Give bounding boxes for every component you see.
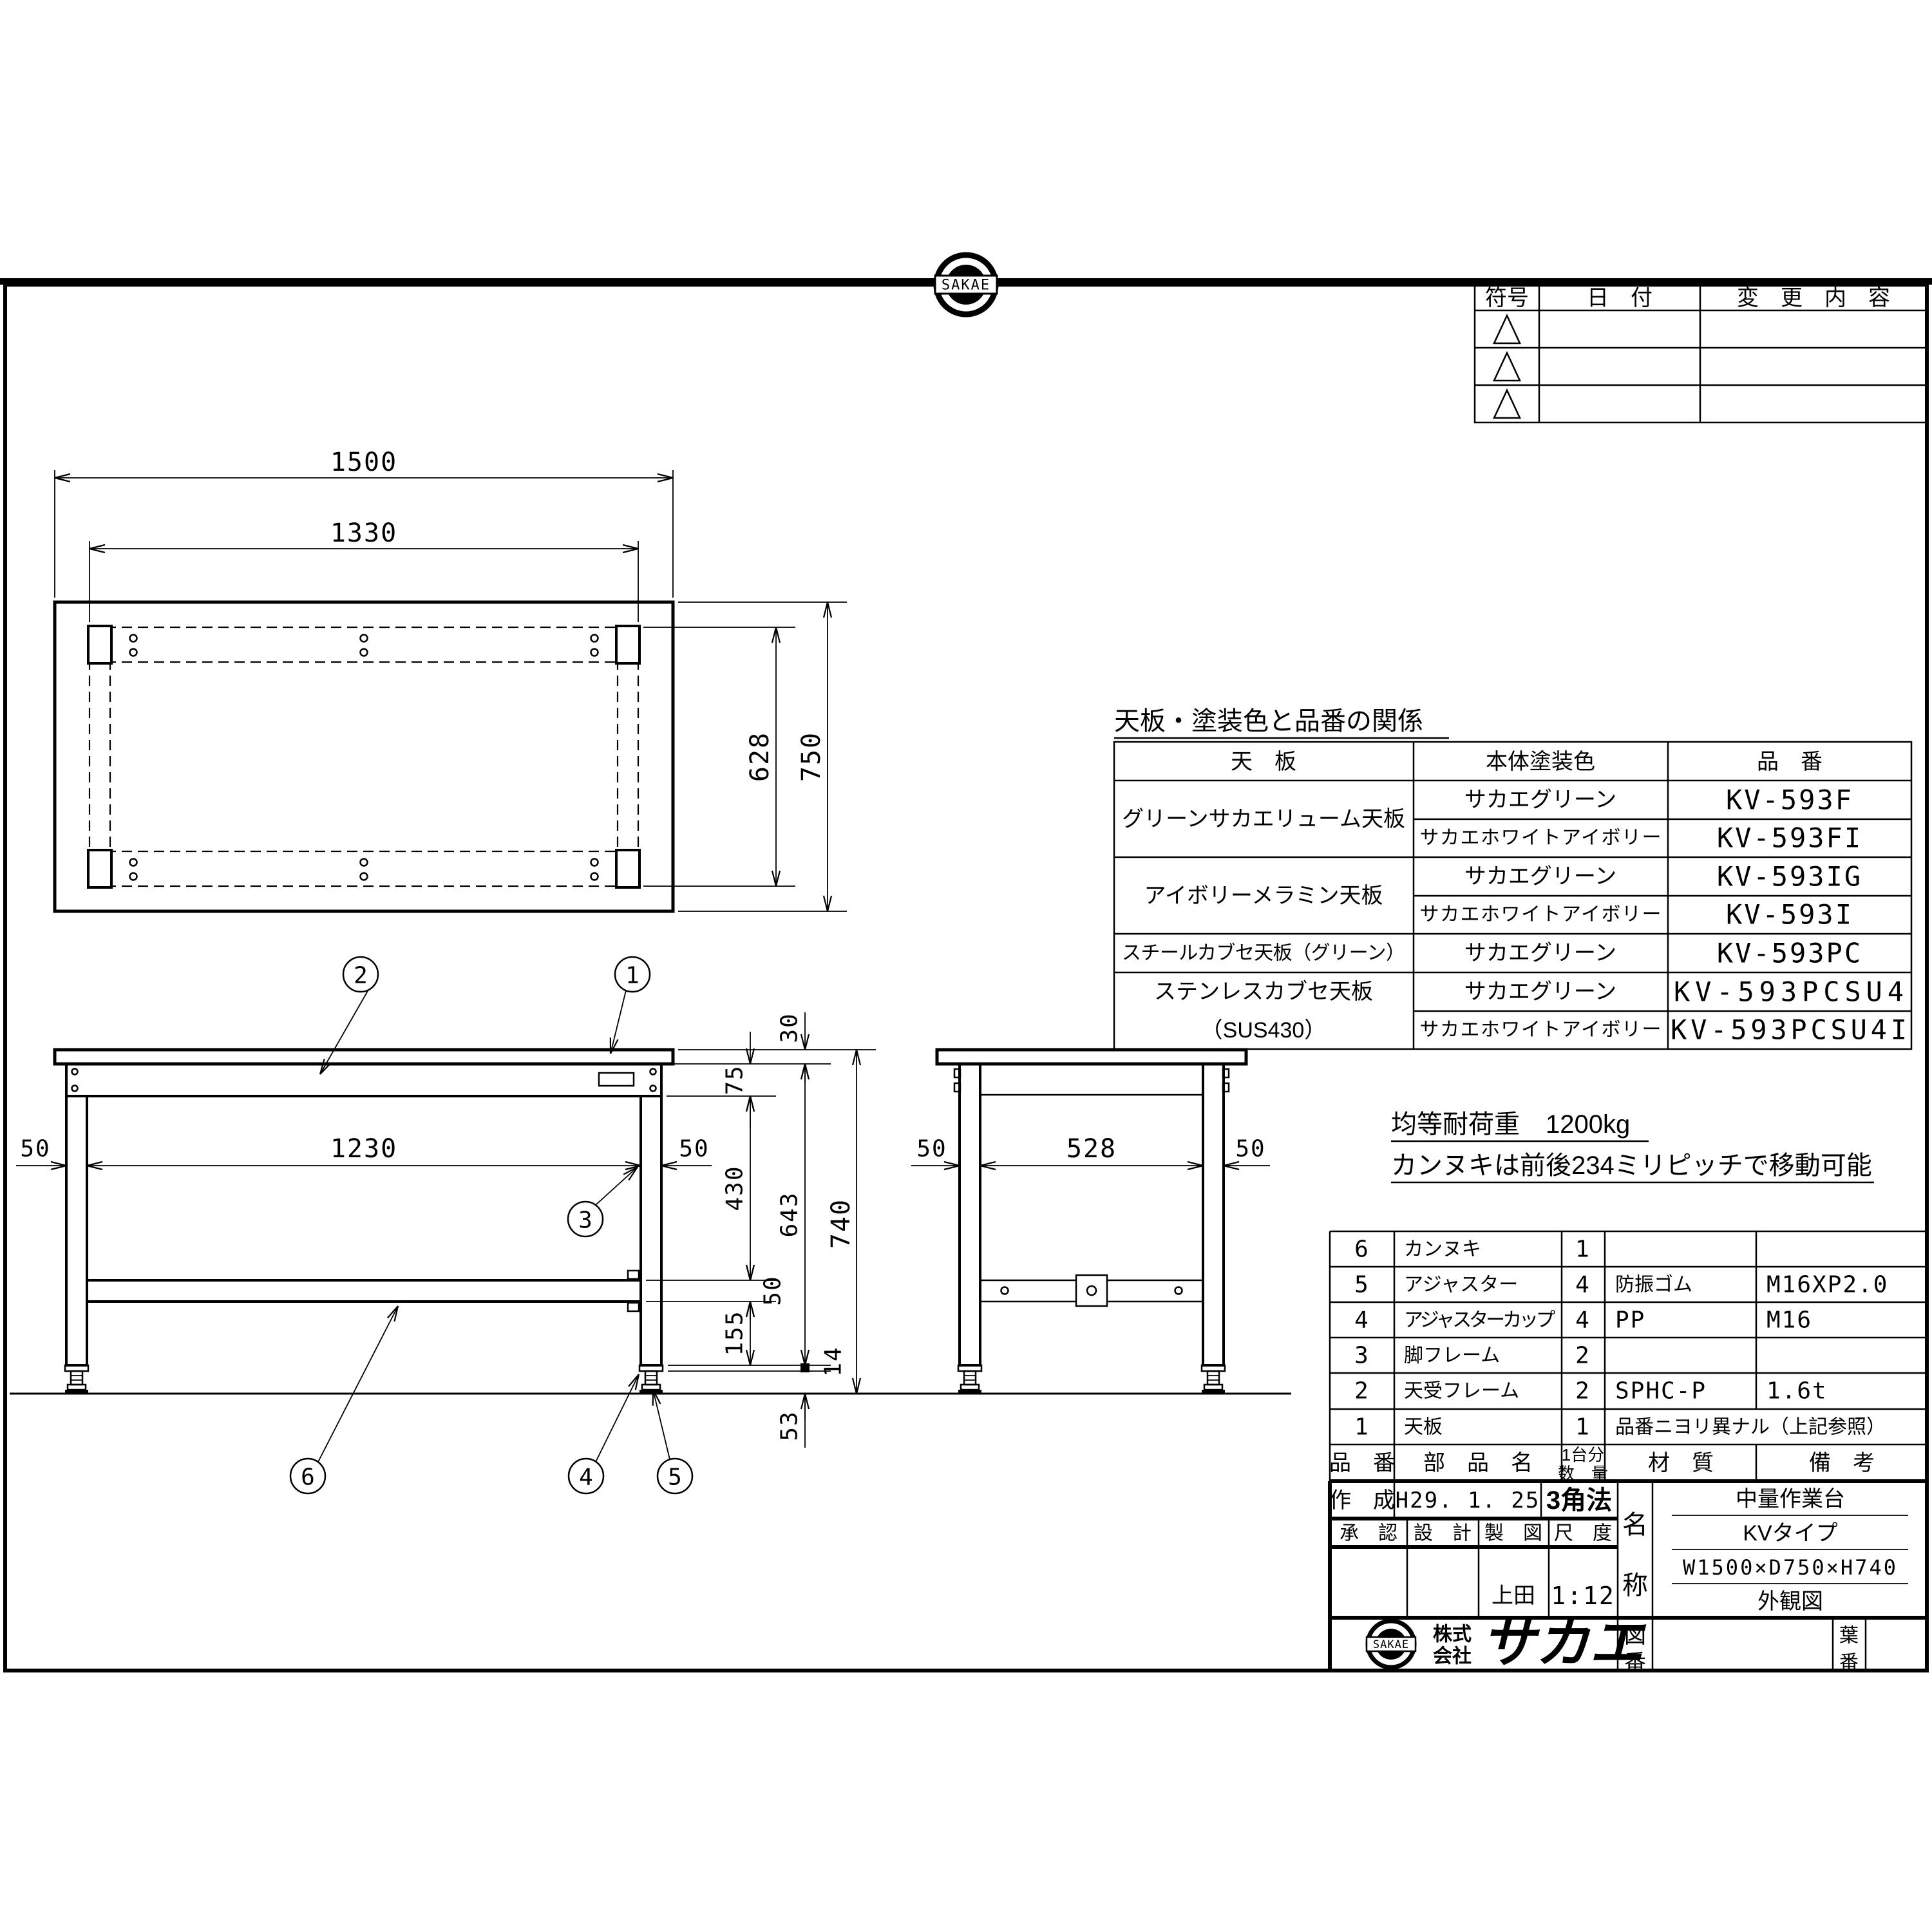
note-load: 均等耐荷重 1200kg	[1391, 1110, 1630, 1139]
col-top-plate: 天 板	[1231, 750, 1296, 774]
revision-table: 符号 日 付 変 更 内 容	[1475, 285, 1927, 422]
dim-front-leg-total: 643	[777, 1191, 803, 1237]
part-number: KV-593I	[1726, 899, 1853, 931]
part-row-qty: 2	[1575, 1343, 1591, 1369]
drawing-number-label: 図	[1624, 1624, 1646, 1648]
dim-front-adjuster: 53	[777, 1410, 803, 1441]
dim-front-height: 740	[826, 1198, 856, 1249]
parts-header-remark: 備 考	[1809, 1451, 1875, 1475]
dim-plan-inner-depth: 628	[745, 732, 775, 782]
parts-header-qty: 1台分	[1562, 1445, 1604, 1464]
part-row-no: 3	[1354, 1343, 1370, 1369]
balloon-5: 5	[668, 1464, 682, 1491]
part-row-no: 1	[1354, 1414, 1370, 1441]
part-number: KV-593F	[1726, 784, 1853, 816]
part-row-material: 品番ニヨリ異ナル（上記参照）	[1615, 1417, 1886, 1438]
sheet-frame	[0, 278, 1932, 1671]
balloon-3: 3	[578, 1207, 592, 1234]
front-leg-right	[641, 1096, 661, 1365]
name-label: 称	[1622, 1571, 1648, 1600]
dim-front-apron-to-rail: 430	[722, 1165, 748, 1211]
part-row-qty: 2	[1575, 1378, 1591, 1405]
parts-header-name: 部 品 名	[1423, 1451, 1533, 1475]
dim-front-rail: 50	[760, 1275, 786, 1305]
color-table-title: 天板・塗装色と品番の関係	[1114, 707, 1423, 735]
dim-front-plate: 14	[820, 1346, 847, 1376]
part-row-name: 天板	[1404, 1417, 1443, 1438]
part-number: KV-593FI	[1717, 822, 1862, 854]
part-number: KV-593PC	[1717, 938, 1862, 969]
sheet-number-label: 葉	[1839, 1625, 1859, 1647]
dim-plan-width: 1500	[330, 448, 397, 477]
created-label: 作 成	[1329, 1488, 1395, 1513]
sheet-number-label: 番	[1839, 1653, 1859, 1674]
balloon-2: 2	[354, 963, 368, 989]
part-number: KV-593PCSU4I	[1671, 1014, 1909, 1046]
front-tabletop	[55, 1050, 673, 1064]
revision-triangle-icon	[1494, 316, 1520, 343]
color-part-table: 天板・塗装色と品番の関係 天 板 本体塗装色 品 番 グリーンサカエリューム天板…	[1114, 707, 1911, 1049]
part-row-remark: M16XP2.0	[1766, 1272, 1888, 1298]
part-row-no: 5	[1354, 1272, 1370, 1298]
name-label: 名	[1622, 1511, 1648, 1539]
parts-header-material: 材 質	[1648, 1451, 1714, 1475]
draft-label: 製 図	[1484, 1523, 1542, 1544]
sakae-top-logo-icon: SAKAE	[935, 255, 997, 314]
col-part-no: 品 番	[1757, 750, 1823, 774]
coat-color: サカエグリーン	[1464, 980, 1616, 1004]
side-tabletop	[937, 1050, 1246, 1064]
top-logo-text: SAKAE	[942, 278, 990, 294]
rail-center-plate	[1076, 1275, 1107, 1306]
adjuster-right	[639, 1365, 663, 1394]
drawing-sheet: SAKAE 符号 日 付 変 更 内 容	[0, 0, 1932, 1932]
part-number: KV-593PCSU4	[1674, 976, 1906, 1008]
product-size: W1500×D750×H740	[1683, 1555, 1898, 1580]
approve-label: 承 認	[1340, 1523, 1397, 1544]
part-row-no: 4	[1354, 1307, 1370, 1334]
revision-triangle-icon	[1494, 353, 1520, 381]
part-row-name: 天受フレーム	[1404, 1381, 1519, 1402]
part-row-name: カンヌキ	[1404, 1239, 1481, 1260]
dim-plan-inner-width: 1330	[330, 518, 397, 548]
parts-header-no: 品 番	[1329, 1451, 1395, 1475]
part-row-name: アジャスター	[1404, 1274, 1518, 1296]
drafter-name: 上田	[1492, 1584, 1535, 1608]
front-apron	[66, 1064, 661, 1096]
coat-color: サカエグリーン	[1464, 941, 1616, 965]
projection-method: 3角法	[1546, 1486, 1612, 1515]
frame-holes	[130, 635, 598, 880]
company-logotype: サカエ	[1481, 1613, 1647, 1673]
balloon-6: 6	[301, 1464, 315, 1491]
side-leg-right	[1203, 1064, 1224, 1365]
plate-name: ステンレスカブセ天板	[1154, 980, 1373, 1004]
plan-view: 1500 1330 628 750	[55, 448, 847, 911]
adjuster-left	[65, 1365, 88, 1394]
dim-front-span: 1230	[330, 1134, 397, 1164]
bottom-logo-text: SAKAE	[1373, 1638, 1409, 1651]
part-row-no: 2	[1354, 1378, 1370, 1405]
part-number: KV-593IG	[1717, 861, 1862, 893]
drawing-kind: 外観図	[1757, 1589, 1823, 1614]
dim-plan-depth: 750	[797, 732, 826, 782]
plate-name: グリーンサカエリューム天板	[1122, 807, 1405, 831]
company-prefix: 株式	[1433, 1624, 1472, 1645]
front-leg-left	[66, 1096, 87, 1365]
coat-color: サカエホワイトアイボリー	[1420, 828, 1662, 849]
parts-header-qty: 数 量	[1558, 1464, 1608, 1483]
product-name: 中量作業台	[1736, 1487, 1845, 1511]
part-row-material: SPHC-P	[1615, 1378, 1707, 1405]
sakae-bottom-logo-icon: SAKAE	[1367, 1621, 1416, 1667]
part-row-material: PP	[1615, 1307, 1645, 1334]
balloon-1: 1	[625, 963, 639, 989]
dim-side-span: 528	[1066, 1134, 1117, 1164]
note-rail-pitch: カンヌキは前後234ミリピッチで移動可能	[1391, 1151, 1872, 1180]
part-row-no: 6	[1354, 1236, 1370, 1263]
design-label: 設 計	[1414, 1523, 1472, 1544]
company-prefix: 会社	[1433, 1646, 1472, 1667]
adjuster-side-left	[958, 1365, 981, 1394]
balloon-4: 4	[579, 1464, 593, 1491]
adjuster-side-right	[1202, 1365, 1225, 1394]
scale-label: 尺 度	[1554, 1523, 1612, 1544]
created-date: H29. 1. 25	[1396, 1488, 1540, 1513]
coat-color: サカエホワイトアイボリー	[1420, 904, 1662, 925]
side-apron	[980, 1064, 1203, 1095]
part-row-name: アジャスターカップ	[1404, 1310, 1555, 1331]
part-row-qty: 1	[1575, 1236, 1591, 1263]
notes: 均等耐荷重 1200kg カンヌキは前後234ミリピッチで移動可能	[1391, 1110, 1874, 1182]
side-view: 50 528 50	[911, 1050, 1270, 1394]
drawing-number-label: 番	[1624, 1651, 1646, 1675]
coat-color: サカエグリーン	[1464, 788, 1616, 812]
plate-name: アイボリーメラミン天板	[1144, 884, 1383, 908]
dim-front-leg-right: 50	[679, 1136, 709, 1162]
front-rail	[87, 1280, 641, 1302]
apron-slot	[599, 1073, 634, 1086]
dim-front-leg-left: 50	[20, 1136, 50, 1162]
plate-name: （SUS430）	[1201, 1018, 1327, 1043]
coat-color: サカエグリーン	[1464, 864, 1616, 889]
revision-col-date: 日 付	[1587, 286, 1653, 310]
dim-side-leg-right: 50	[1235, 1136, 1265, 1162]
part-row-qty: 4	[1575, 1272, 1591, 1298]
col-body-color: 本体塗装色	[1486, 750, 1595, 774]
part-row-qty: 4	[1575, 1307, 1591, 1334]
balloon-callouts: 2 1 3 6 4 5	[290, 957, 692, 1493]
scale-value: 1:12	[1551, 1582, 1615, 1610]
dim-side-leg-left: 50	[916, 1136, 947, 1162]
part-row-qty: 1	[1575, 1414, 1591, 1441]
side-leg-left	[960, 1064, 980, 1365]
part-row-remark: M16	[1766, 1307, 1812, 1334]
title-block: 作 成 H29. 1. 25 3角法 承 認 設 計 製 図 尺 度 上田 1:…	[1329, 1481, 1927, 1675]
revision-col-symbol: 符号	[1485, 286, 1529, 310]
dim-front-apron: 75	[722, 1065, 748, 1095]
coat-color: サカエホワイトアイボリー	[1420, 1019, 1662, 1041]
dim-front-rail-to-floor: 155	[722, 1310, 748, 1356]
product-type: KVタイプ	[1743, 1521, 1837, 1546]
part-row-material: 防振ゴム	[1615, 1274, 1692, 1296]
front-view: 50 1230 50 75 430 50 155 30 643 14 53 74…	[16, 1012, 876, 1448]
part-row-remark: 1.6t	[1766, 1378, 1828, 1405]
revision-triangle-icon	[1494, 390, 1520, 418]
part-row-name: 脚フレーム	[1404, 1345, 1500, 1367]
plate-name: スチールカブセ天板（グリーン）	[1122, 943, 1405, 964]
revision-col-change: 変 更 内 容	[1737, 286, 1890, 310]
parts-table: 6 カンヌキ 1 5 アジャスター 4 防振ゴム M16XP2.0 4 アジャス…	[1329, 1231, 1927, 1483]
dim-front-top-thick: 30	[777, 1012, 803, 1043]
